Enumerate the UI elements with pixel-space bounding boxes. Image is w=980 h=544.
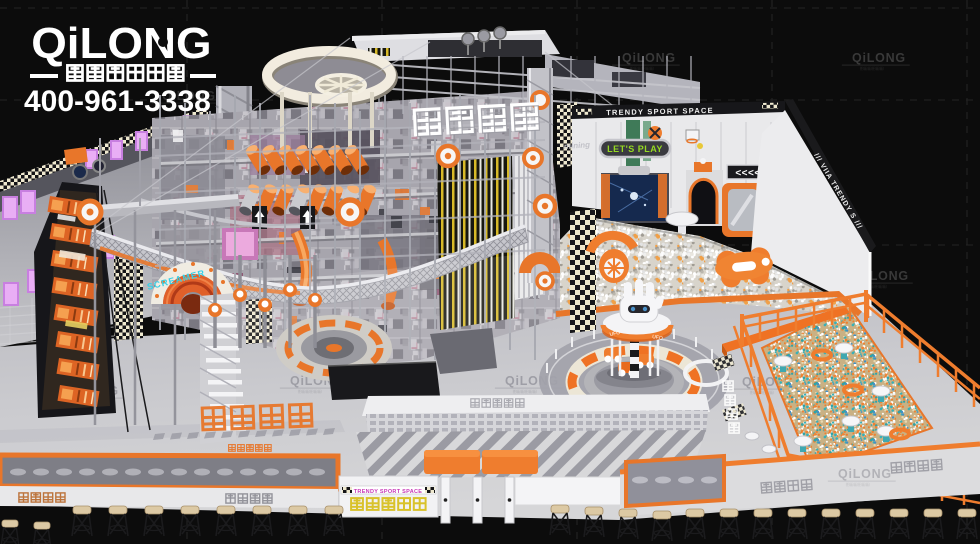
- svg-text:QiLONG: QiLONG: [31, 18, 211, 68]
- svg-text:QiLONG: QiLONG: [838, 467, 892, 481]
- svg-text:mining: mining: [564, 140, 591, 151]
- svg-text:QiLONG: QiLONG: [622, 51, 676, 65]
- svg-text:QiLONG: QiLONG: [852, 51, 906, 65]
- svg-text:LET'S PLAY: LET'S PLAY: [607, 144, 663, 154]
- svg-text:<<<<: <<<<: [735, 168, 760, 179]
- svg-text:TRENDY SPORT SPACE: TRENDY SPORT SPACE: [354, 489, 422, 495]
- svg-text:400-961-3338: 400-961-3338: [24, 85, 211, 118]
